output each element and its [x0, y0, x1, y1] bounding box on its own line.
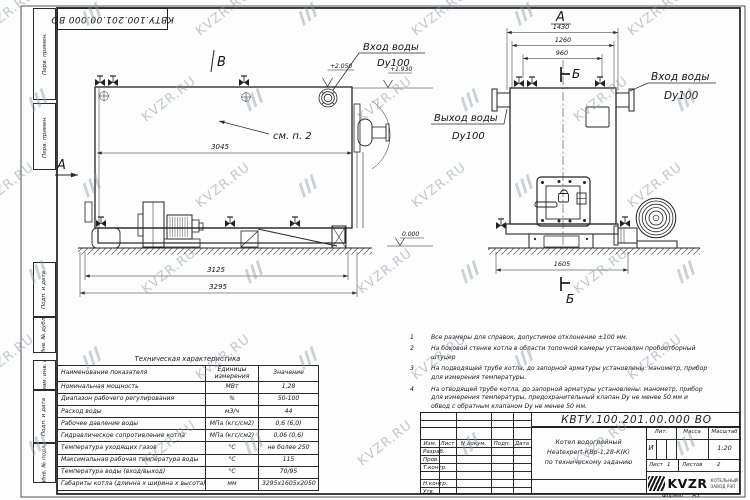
line	[421, 420, 531, 421]
side-skid	[92, 226, 346, 248]
line	[531, 479, 646, 480]
col-data: Дата	[513, 441, 531, 447]
elev-2050: +2.050	[330, 63, 352, 70]
dim-3045: 3045	[211, 143, 229, 151]
note-number: 1	[410, 334, 431, 343]
kvzr-logo-icon	[648, 476, 665, 491]
frame-cell-label: Инв. № подл.	[42, 444, 48, 483]
note-text: На боковой стенке котла в области топочн…	[431, 345, 708, 363]
table-row: Номинальная мощностьМВт1,28	[58, 382, 319, 394]
line	[646, 471, 741, 472]
line	[513, 413, 514, 495]
front-outlet-dn: Dy100	[452, 131, 485, 142]
frame-cell-label: Инв. № дубл.	[42, 317, 48, 353]
note-item: 3На подводящей трубе котла, до запорной …	[410, 365, 708, 383]
frame-cell-label: Перв. примен.	[42, 33, 48, 75]
cell-name: Температура воды (вход/выход)	[58, 466, 206, 478]
note-item: 2На боковой стенке котла в области топоч…	[410, 345, 708, 363]
cell-name: Габариты котла (длинна х ширина х высота…	[58, 478, 206, 490]
cell-value: 50-100	[259, 394, 319, 406]
line	[656, 439, 657, 459]
format-note: ФорматА3	[662, 493, 708, 499]
table-row: Габариты котла (длинна х ширина х высота…	[58, 478, 319, 490]
line	[421, 487, 531, 488]
cell-name: Гидравлическое сопротивление котла	[58, 430, 206, 442]
cell-value: 44	[259, 406, 319, 418]
note-item: 1Все размеры для справок, допустимое отк…	[410, 334, 708, 343]
line	[456, 413, 457, 495]
row-razrab: Разраб.	[423, 449, 445, 455]
cell-name: Диапазон рабочего регулирования	[58, 394, 206, 406]
cell-name: Температура уходящих газов	[58, 442, 206, 454]
frame-cell-vzam-inv: Взам. инв. №	[33, 360, 56, 390]
cell-units: °С	[206, 466, 259, 478]
dim-1430: 1430	[553, 23, 570, 31]
doc-number: КВТУ.100.201.00.000 ВО	[531, 413, 741, 427]
title-block: КВТУ.100.201.00.000 ВО Изм. Лист N докум…	[420, 412, 740, 494]
line	[646, 459, 741, 460]
top-stamp: КВТУ.100.201.00.000 ВО	[57, 8, 168, 30]
kvzr-logo-sub2: ЗАВОД РЭП	[711, 484, 738, 489]
frame-cell-podp-data-1: Подп. и дата	[33, 262, 56, 317]
format-value: А3	[692, 493, 699, 499]
col-list: Лист	[439, 441, 456, 447]
row-prov: Пров.	[423, 457, 439, 463]
kvzr-logo-sub1: КОТЕЛЬНЫЙ	[711, 478, 738, 483]
top-stamp-number: КВТУ.100.201.00.000 ВО	[51, 14, 174, 24]
lit-header: Лит.	[646, 429, 676, 435]
product-title-line3: по техническому заданию	[545, 458, 633, 468]
line	[646, 439, 741, 440]
fan-motor	[138, 202, 203, 247]
tech-table-title: Техническая характеристика	[57, 355, 318, 365]
note-number: 4	[410, 386, 431, 412]
side-inlet-label: Вход воды	[363, 42, 419, 53]
col-izm: Изм.	[421, 441, 439, 447]
col-name-header: Наименование показателя	[58, 366, 206, 382]
cell-name: Максимальная рабочая температура воды	[58, 454, 206, 466]
kvzr-logo-text: KVZR	[667, 476, 707, 491]
cell-units: °С	[206, 442, 259, 454]
line	[666, 439, 667, 459]
flange-symbol	[99, 91, 251, 102]
cell-name: Расход воды	[58, 406, 206, 418]
table-row: Диапазон рабочего регулирования%50-100	[58, 394, 319, 406]
dim-1260: 1260	[555, 36, 572, 44]
mass-header: Масса	[676, 429, 708, 435]
product-title-line2: Heatexpert-КВр-1,28-К(К)	[547, 448, 630, 458]
line	[678, 459, 679, 471]
cell-units: МПа (кгс/см2)	[206, 430, 259, 442]
scale-value: 1:20	[708, 444, 741, 452]
table-row: Гидравлическое сопротивление котлаМПа (к…	[58, 430, 319, 442]
table-row: Температура воды (вход/выход)°С70/95	[58, 466, 319, 478]
kvzr-logo-subtext: КОТЕЛЬНЫЙ ЗАВОД РЭП	[711, 478, 738, 489]
elev-0000: 0.000	[402, 231, 419, 238]
product-title: Котел водогрейный Heatexpert-КВр-1,28-К(…	[533, 429, 644, 477]
frame-cell-podp-data-2: Подп. и дата	[33, 390, 56, 443]
cell-units: м3/ч	[206, 406, 259, 418]
cell-units: МПа (кгс/см2)	[206, 418, 259, 430]
row-tkontr: Т.контр.	[423, 465, 447, 471]
frame-cell-label: Перв. примен.	[42, 116, 48, 158]
cell-units: мм	[206, 478, 259, 490]
ground-line	[78, 248, 372, 255]
cell-name: Рабочее давление воды	[58, 418, 206, 430]
col-ndoc: N докум.	[456, 441, 491, 447]
cell-value: 1,28	[259, 382, 319, 394]
cell-value: 3295х1605х2050	[259, 478, 319, 490]
side-dimensions	[80, 153, 357, 297]
cell-units: °С	[206, 454, 259, 466]
note-number: 2	[410, 345, 431, 363]
notes-list: 1Все размеры для справок, допустимое отк…	[410, 334, 708, 415]
front-inlet-dn: Dy100	[664, 90, 699, 102]
table-row: Максимальная рабочая температура воды°С1…	[58, 454, 319, 466]
table-row: Температура уходящих газов°Сне более 250	[58, 442, 319, 454]
dim-3125: 3125	[207, 266, 225, 274]
sheets-value: 2	[717, 462, 721, 468]
dim-3295: 3295	[209, 283, 227, 291]
view-label-b: В	[217, 55, 226, 70]
front-inlet-label: Вход воды	[651, 71, 710, 83]
frame-cell-label: Подп. и дата	[42, 397, 48, 435]
note-item: 4На отводящей трубе котла, до запорной а…	[410, 386, 708, 412]
note-text: На подводящей трубе котла, до запорной а…	[431, 365, 708, 383]
note-text: Все размеры для справок, допустимое откл…	[431, 334, 708, 343]
scale-header: Масштаб	[708, 429, 741, 435]
note-number: 3	[410, 365, 431, 383]
drawing-sheet: А В см. п. 2 3045 3125 3295 +2.050 +1.93…	[0, 0, 750, 500]
nameplate	[586, 107, 609, 127]
furnace-door	[535, 177, 590, 226]
front-outlet-label: Выход воды	[434, 113, 498, 124]
format-label: Формат	[662, 493, 684, 499]
frame-cell-sprav: Перв. примен.	[33, 103, 56, 170]
cell-value: 0,6 (6,0)	[259, 418, 319, 430]
note-text: На отводящей трубе котла, до запорной ар…	[431, 386, 708, 412]
tech-characteristics: Техническая характеристика Наименование …	[57, 355, 318, 491]
section-label-b-bottom: Б	[566, 292, 574, 306]
cell-value: 70/95	[259, 466, 319, 478]
cell-name: Номинальная мощность	[58, 382, 206, 394]
col-podp: Подп.	[491, 441, 513, 447]
dim-960: 960	[556, 49, 568, 57]
line	[491, 413, 492, 495]
cell-units: МВт	[206, 382, 259, 394]
line	[421, 471, 531, 472]
front-dimensions	[496, 28, 628, 274]
frame-cell-inv-dubl: Инв. № дубл.	[33, 317, 56, 353]
sheet-label: Лист	[649, 462, 663, 468]
cell-value: не более 250	[259, 442, 319, 454]
front-view: А Б Б 1430 1260 960 1605 Вход воды Dy100…	[431, 10, 716, 306]
sheet-value: 1	[667, 462, 671, 468]
ground-line-front	[488, 248, 700, 255]
col-units-header: Единицы измерения	[206, 366, 259, 382]
side-view: А В см. п. 2 3045 3125 3295 +2.050 +1.93…	[55, 42, 433, 297]
inlet-flange	[319, 89, 337, 107]
cell-value: 0,06 (0,6)	[259, 430, 319, 442]
product-title-line1: Котел водогрейный	[555, 438, 621, 448]
row-nkontr: Н.контр.	[423, 481, 448, 487]
cell-value: 115	[259, 454, 319, 466]
see-note-label: см. п. 2	[273, 131, 312, 142]
side-burner-assembly	[354, 101, 390, 228]
col-value-header: Значение	[259, 366, 319, 382]
lit-value: И	[646, 444, 656, 452]
tech-table: Наименование показателя Единицы измерени…	[57, 365, 319, 491]
section-label-b-top: Б	[572, 67, 580, 81]
frame-cell-label: Подп. и дата	[42, 270, 48, 308]
frame-cell-inv-podl: Инв. № подл.	[33, 443, 56, 483]
table-row: Расход водым3/ч44	[58, 406, 319, 418]
side-inlet-dn: Dy100	[377, 58, 410, 69]
sheets-label: Листов	[682, 462, 703, 468]
cell-units: %	[206, 394, 259, 406]
dim-1605: 1605	[554, 260, 571, 268]
view-arrow-label-a: А	[56, 158, 66, 173]
table-header-row: Наименование показателя Единицы измерени…	[58, 366, 319, 382]
kvzr-logo: KVZR КОТЕЛЬНЫЙ ЗАВОД РЭП	[648, 474, 738, 493]
frame-cell-label: Взам. инв. №	[42, 360, 48, 390]
table-row: Рабочее давление водыМПа (кгс/см2)0,6 (6…	[58, 418, 319, 430]
row-utv: Утв.	[423, 489, 435, 495]
